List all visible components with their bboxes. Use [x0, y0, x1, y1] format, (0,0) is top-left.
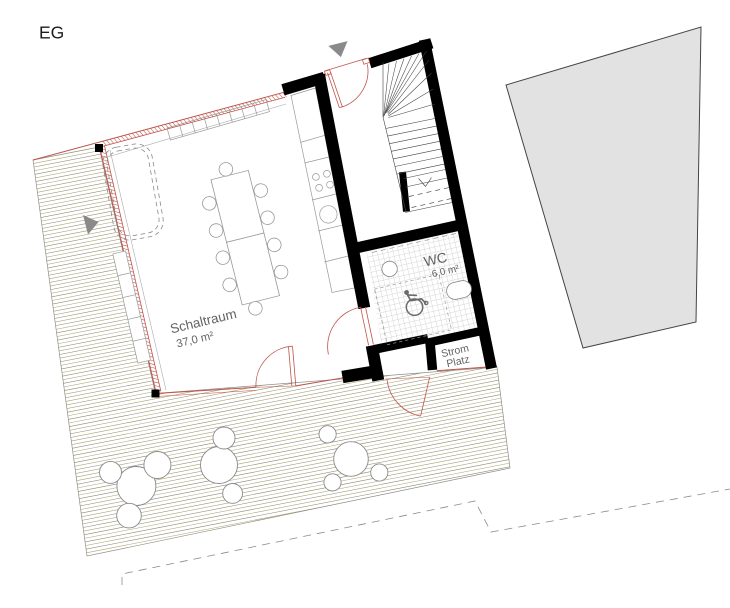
svg-text:EG: EG [39, 23, 64, 43]
